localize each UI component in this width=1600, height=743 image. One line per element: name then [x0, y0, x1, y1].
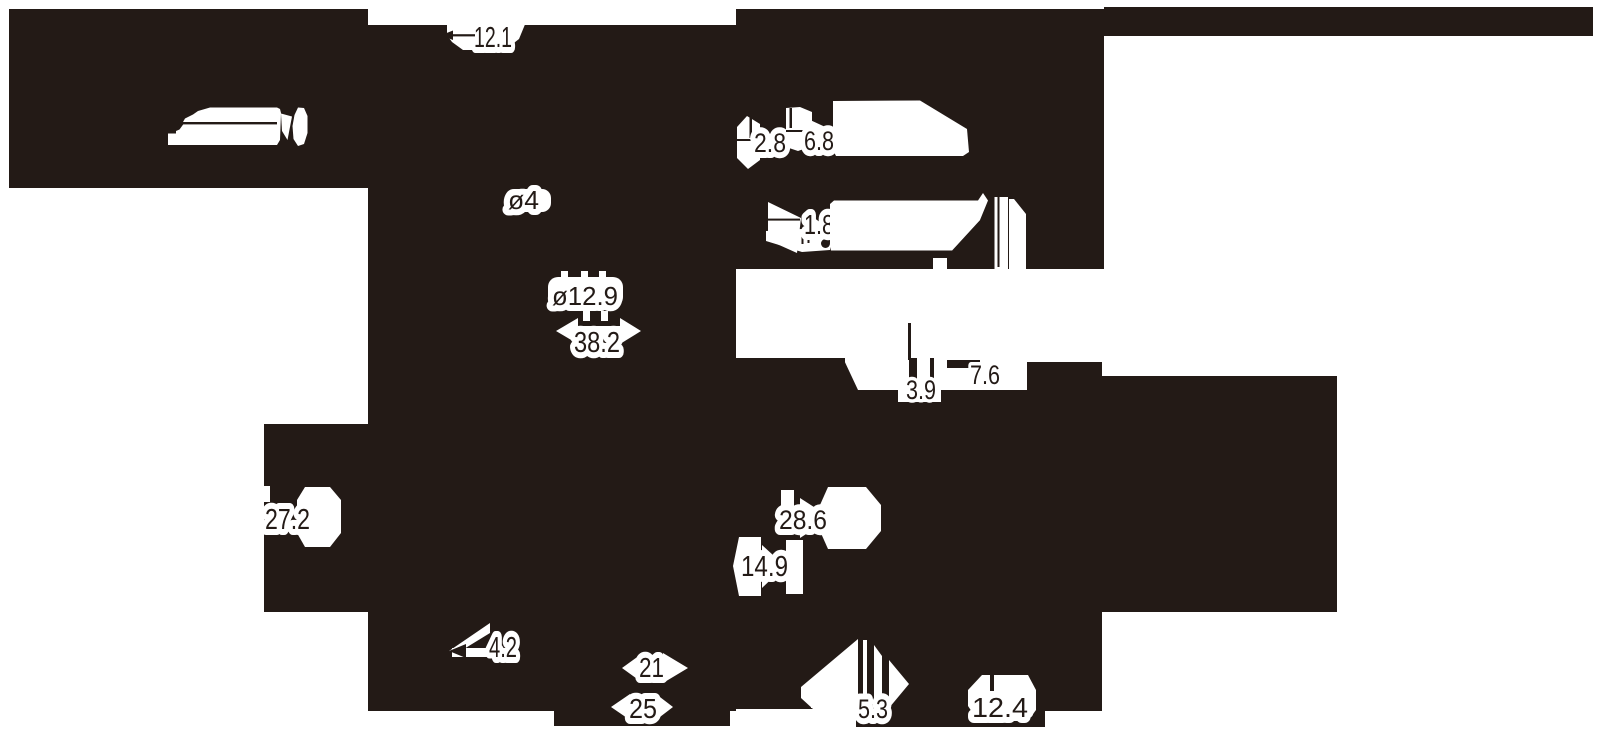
svg-text:7.6: 7.6	[970, 360, 1000, 390]
svg-text:4.2: 4.2	[489, 632, 517, 664]
svg-text:38.2: 38.2	[574, 327, 620, 359]
svg-text:2.8: 2.8	[754, 128, 786, 158]
svg-text:27.2: 27.2	[265, 504, 310, 536]
svg-text:21: 21	[639, 652, 664, 683]
svg-text:1.8: 1.8	[804, 209, 834, 240]
svg-text:ø4: ø4	[508, 185, 539, 215]
svg-text:12.1: 12.1	[474, 22, 512, 54]
svg-text:12.4: 12.4	[972, 692, 1028, 723]
svg-text:25: 25	[629, 693, 657, 724]
svg-text:3.9: 3.9	[906, 375, 936, 405]
svg-text:28.6: 28.6	[779, 505, 827, 535]
svg-text:14.9: 14.9	[741, 551, 788, 583]
svg-text:ø12.9: ø12.9	[552, 281, 618, 311]
svg-text:5.3: 5.3	[858, 694, 888, 724]
svg-text:6.8: 6.8	[804, 126, 834, 156]
